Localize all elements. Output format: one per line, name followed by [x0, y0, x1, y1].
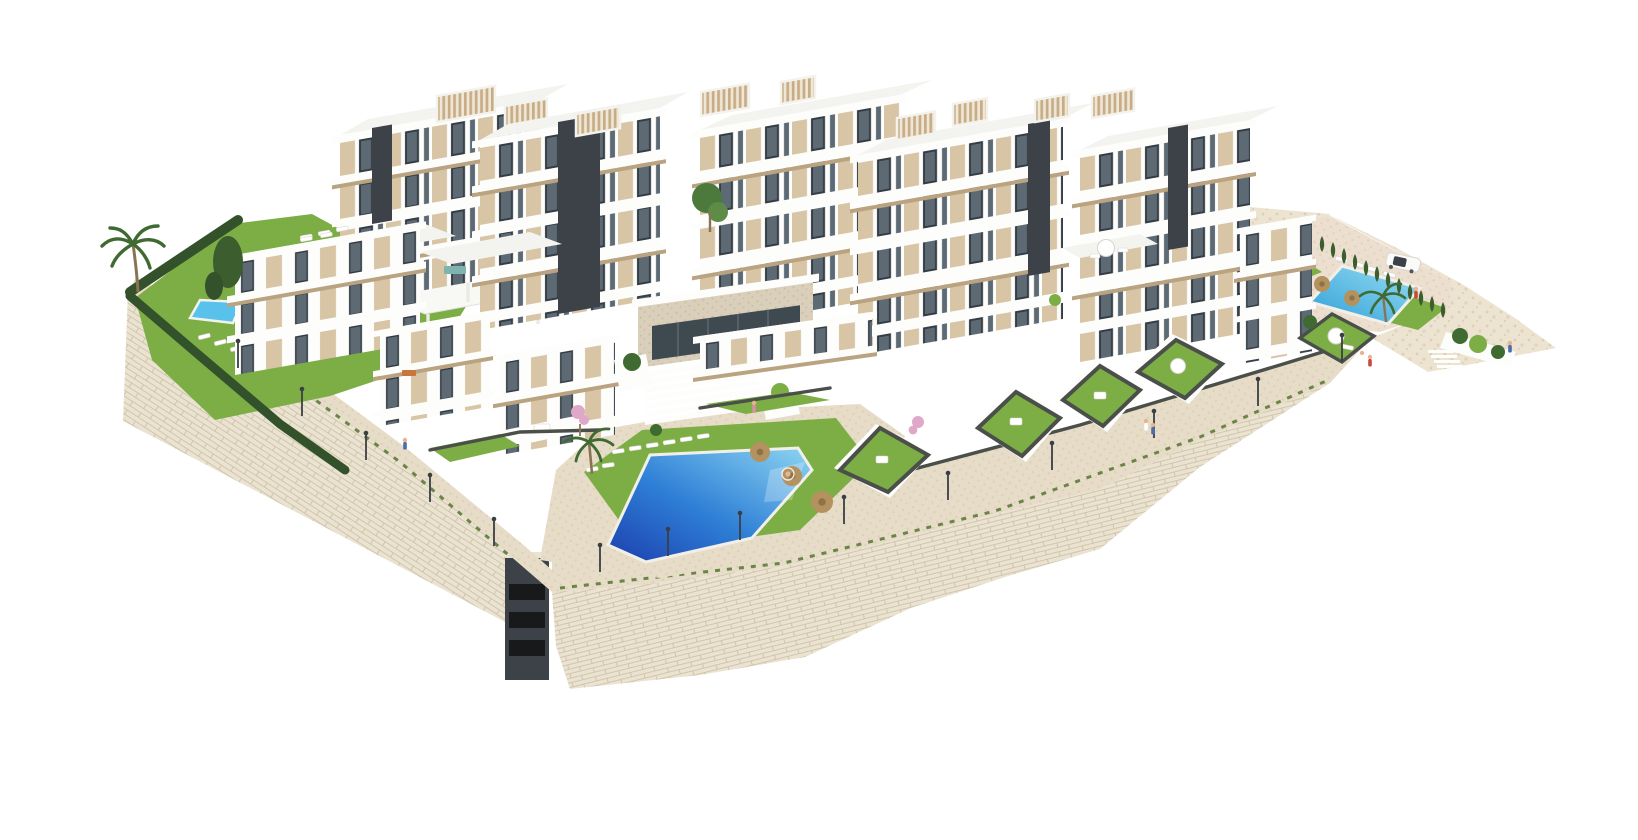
balcony-dining-set — [402, 370, 416, 376]
straw-umbrella — [750, 442, 770, 462]
roof-pergola — [781, 76, 815, 104]
roof-pergola — [701, 84, 749, 116]
render-canvas — [0, 0, 1638, 840]
straw-umbrella — [1314, 276, 1330, 292]
architectural-render — [0, 0, 1638, 840]
straw-umbrella — [811, 491, 833, 513]
roof-pergola — [953, 98, 987, 126]
building-far-right — [1234, 215, 1316, 365]
shrub — [1049, 294, 1061, 306]
roof-pergola — [1035, 94, 1069, 122]
blossom-tree — [909, 416, 924, 434]
shrub — [1303, 315, 1317, 329]
straw-umbrella — [1344, 290, 1360, 306]
palm-tree — [102, 226, 164, 292]
roof-pergola — [1092, 89, 1134, 118]
shrub — [650, 424, 662, 436]
